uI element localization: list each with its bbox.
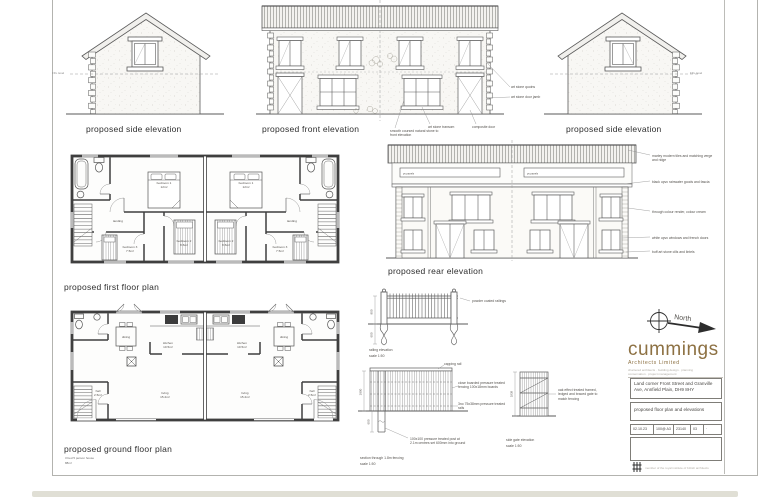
room-area: 8.5m² [222, 243, 230, 247]
brand-block: cummings Architects Limited chartered ar… [628, 340, 723, 378]
room-area: 2.5m² [94, 393, 102, 397]
notes-box [630, 437, 722, 461]
first-floor-plan-drawing: bedroom 1 12m² landing bedroom 3 7.5m² b… [64, 150, 346, 280]
side-elevation-left-title: proposed side elevation [86, 124, 182, 134]
fence-section-drawing: 1800 600 [358, 362, 468, 448]
fence-height-dim: 1800 [359, 388, 363, 395]
fence-scale: scale 1:50 [360, 462, 375, 466]
revision: 03 [691, 425, 704, 434]
drawing-info-row: 02.10.23 100@ A3 23140 03 · [630, 424, 722, 435]
ffl-level-label-right: FFL level [690, 71, 702, 75]
room-area: 15.2m² [160, 395, 170, 399]
side-gate-drawing: 1838 [508, 366, 556, 426]
room-label: landing [287, 219, 297, 223]
side-elevation-right-drawing [540, 4, 706, 122]
fence-note-post: 100x100 pressure treated post at 2.1m ce… [410, 437, 468, 446]
front-elevation-drawing [254, 0, 506, 122]
ground-floor-note-2: 88m² [65, 461, 72, 465]
job-number: 23140 [674, 425, 691, 434]
fence-section-title: section through 1.8m fencing [360, 456, 404, 460]
side-elevation-left-drawing [62, 4, 228, 122]
ffl-level-label-left: FFL level [52, 71, 64, 75]
rear-note-rainwater: black upvc rainwater goods and fascia [652, 180, 716, 184]
room-label: dining [280, 335, 289, 339]
north-label: North [674, 314, 692, 323]
drawing-date: 02.10.23 [631, 425, 654, 434]
room-area: 8.5m² [180, 243, 188, 247]
fence-post-dim: 600 [367, 419, 371, 424]
ground-floor-plan-drawing: dining kitchen 10.5m² living 15.2m² hall… [64, 302, 346, 442]
titleblock-divider-line [724, 0, 725, 474]
fence-note-capping: capping rail [444, 362, 461, 366]
institute-footer-text: member of the royal institute of british… [645, 466, 709, 470]
riba-monogram-icon [632, 461, 642, 473]
front-note-stone: smooth coursed natural stone to front el… [390, 129, 442, 138]
room-area: 2.5m² [308, 393, 316, 397]
paper-edge-shadow [32, 491, 738, 497]
gate-scale: scale 1:50 [506, 444, 521, 448]
project-address-box: Land corner Front Street and Granville A… [630, 378, 722, 399]
first-floor-plan-title: proposed first floor plan [64, 282, 159, 292]
front-elevation-title: proposed front elevation [262, 124, 359, 134]
north-arrow: North [644, 306, 724, 336]
room-area: 7.5m² [276, 249, 284, 253]
room-area: 15.2m² [240, 395, 250, 399]
ground-floor-note-1: 3 bed 5 person house [65, 456, 94, 460]
brand-subtitle: Architects Limited [628, 360, 723, 366]
revision-extra: · [704, 425, 721, 434]
room-label: dining [122, 335, 131, 339]
railing-scale: scale 1:50 [369, 354, 384, 358]
rear-note-tiles: marley modern tiles and matching verge a… [652, 154, 716, 163]
room-area: 10.5m² [237, 345, 247, 349]
rear-elevation-title: proposed rear elevation [388, 266, 483, 276]
room-area: 7.5m² [126, 249, 134, 253]
room-label: landing [113, 219, 123, 223]
railing-elevation-title: railing elevation [369, 348, 393, 352]
gate-height-dim: 1838 [510, 390, 514, 397]
rear-note-render: through colour render, colour cream [652, 210, 716, 214]
front-note-transom: art stone transom [428, 125, 454, 129]
fence-note-boards: close boarded pressure treated fencing 1… [458, 381, 508, 390]
rear-note-windows: white upvc windows and french doors [652, 236, 716, 240]
drawing-sheet: FFL level proposed side elevation [0, 0, 760, 500]
side-gate-title: side gate elevation [506, 438, 534, 442]
pv-panel-label: pv panels [403, 172, 415, 176]
railing-elevation-drawing: 900 600 [368, 286, 468, 354]
rear-elevation-drawing: pv panels pv panels [384, 138, 640, 262]
railing-height-dim: 900 [370, 309, 374, 314]
railing-note: powder coated railings [472, 299, 506, 303]
front-note-door: composite door [472, 125, 495, 129]
room-area: 12m² [242, 185, 249, 189]
ground-floor-plan-title: proposed ground floor plan [64, 444, 172, 454]
project-address: Land corner Front Street and Granville A… [634, 381, 712, 392]
fence-note-rails: 3no 75x38mm pressure treated rails [458, 402, 508, 411]
drawing-scale: 100@ A3 [654, 425, 674, 434]
brand-logo-text: cummings [628, 340, 723, 359]
brand-contact-line2: conservation · project management [628, 372, 723, 376]
gate-note: oak effect treated framed, ledged and br… [558, 388, 600, 401]
rear-note-cills: buff art stone cills and lintels [652, 250, 716, 254]
room-area: 12m² [160, 185, 167, 189]
drawing-title: proposed floor plan and elevations [634, 407, 704, 412]
room-area: 10.5m² [163, 345, 173, 349]
pv-panel-label: pv panels [527, 172, 539, 176]
drawing-title-box: proposed floor plan and elevations [630, 402, 722, 421]
railing-post-dim: 600 [370, 332, 374, 337]
brand-contact: chartered architects · building design ·… [628, 368, 723, 379]
side-elevation-right-title: proposed side elevation [566, 124, 662, 134]
